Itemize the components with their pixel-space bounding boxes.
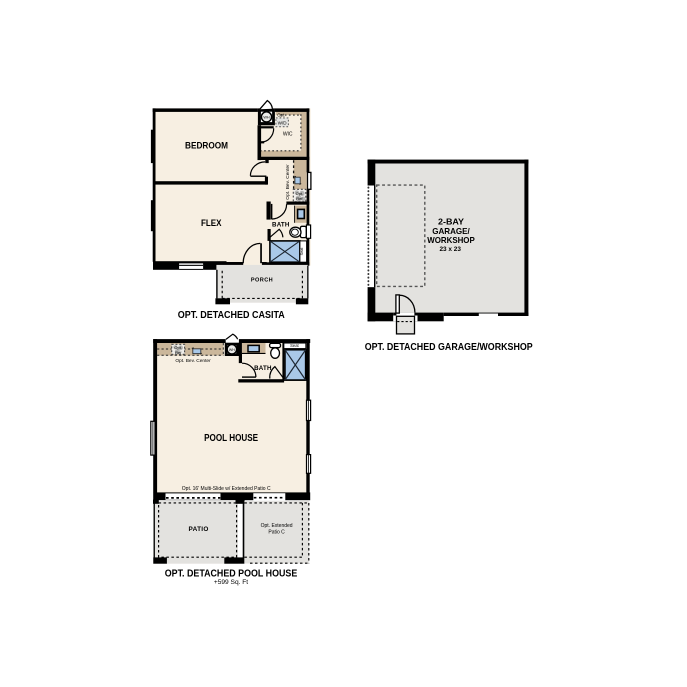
svg-text:Seat: Seat [300,247,304,256]
svg-text:PATIO: PATIO [189,526,209,533]
svg-text:Opt. Bev. Center: Opt. Bev. Center [285,164,291,200]
svg-text:WIC: WIC [283,132,293,138]
svg-text:PORCH: PORCH [251,278,273,284]
svg-text:+599 Sq. Ft: +599 Sq. Ft [214,579,248,586]
svg-text:WORKSHOP: WORKSHOP [427,235,475,245]
svg-text:23 x 23: 23 x 23 [439,246,461,253]
svg-text:2-BAY: 2-BAY [438,216,464,226]
svg-text:FLEX: FLEX [201,218,222,228]
svg-text:OPT. DETACHED POOL HOUSE: OPT. DETACHED POOL HOUSE [165,569,298,580]
svg-text:Opt. Extended: Opt. Extended [261,523,293,529]
svg-text:BATH: BATH [254,365,272,372]
svg-text:POOL HOUSE: POOL HOUSE [204,433,258,444]
svg-text:OPT. DETACHED CASITA: OPT. DETACHED CASITA [178,310,285,321]
svg-text:OPT. DETACHED GARAGE/WORKSHOP: OPT. DETACHED GARAGE/WORKSHOP [365,342,533,353]
svg-text:Opt. 16' Multi-Slide w/ Extend: Opt. 16' Multi-Slide w/ Extended Patio C [182,486,271,492]
svg-text:WH: WH [229,348,235,352]
svg-text:W/D: W/D [278,121,288,126]
svg-text:Ref: Ref [296,196,303,201]
svg-text:Ref: Ref [175,350,182,355]
svg-text:BEDROOM: BEDROOM [185,141,228,151]
svg-text:Opt. Bev. Center: Opt. Bev. Center [175,358,211,364]
svg-text:WH: WH [263,116,270,120]
svg-text:Patio C: Patio C [268,530,285,536]
svg-text:Opt.: Opt. [277,112,285,117]
svg-text:BATH: BATH [272,221,290,228]
svg-text:Seat: Seat [290,343,299,348]
